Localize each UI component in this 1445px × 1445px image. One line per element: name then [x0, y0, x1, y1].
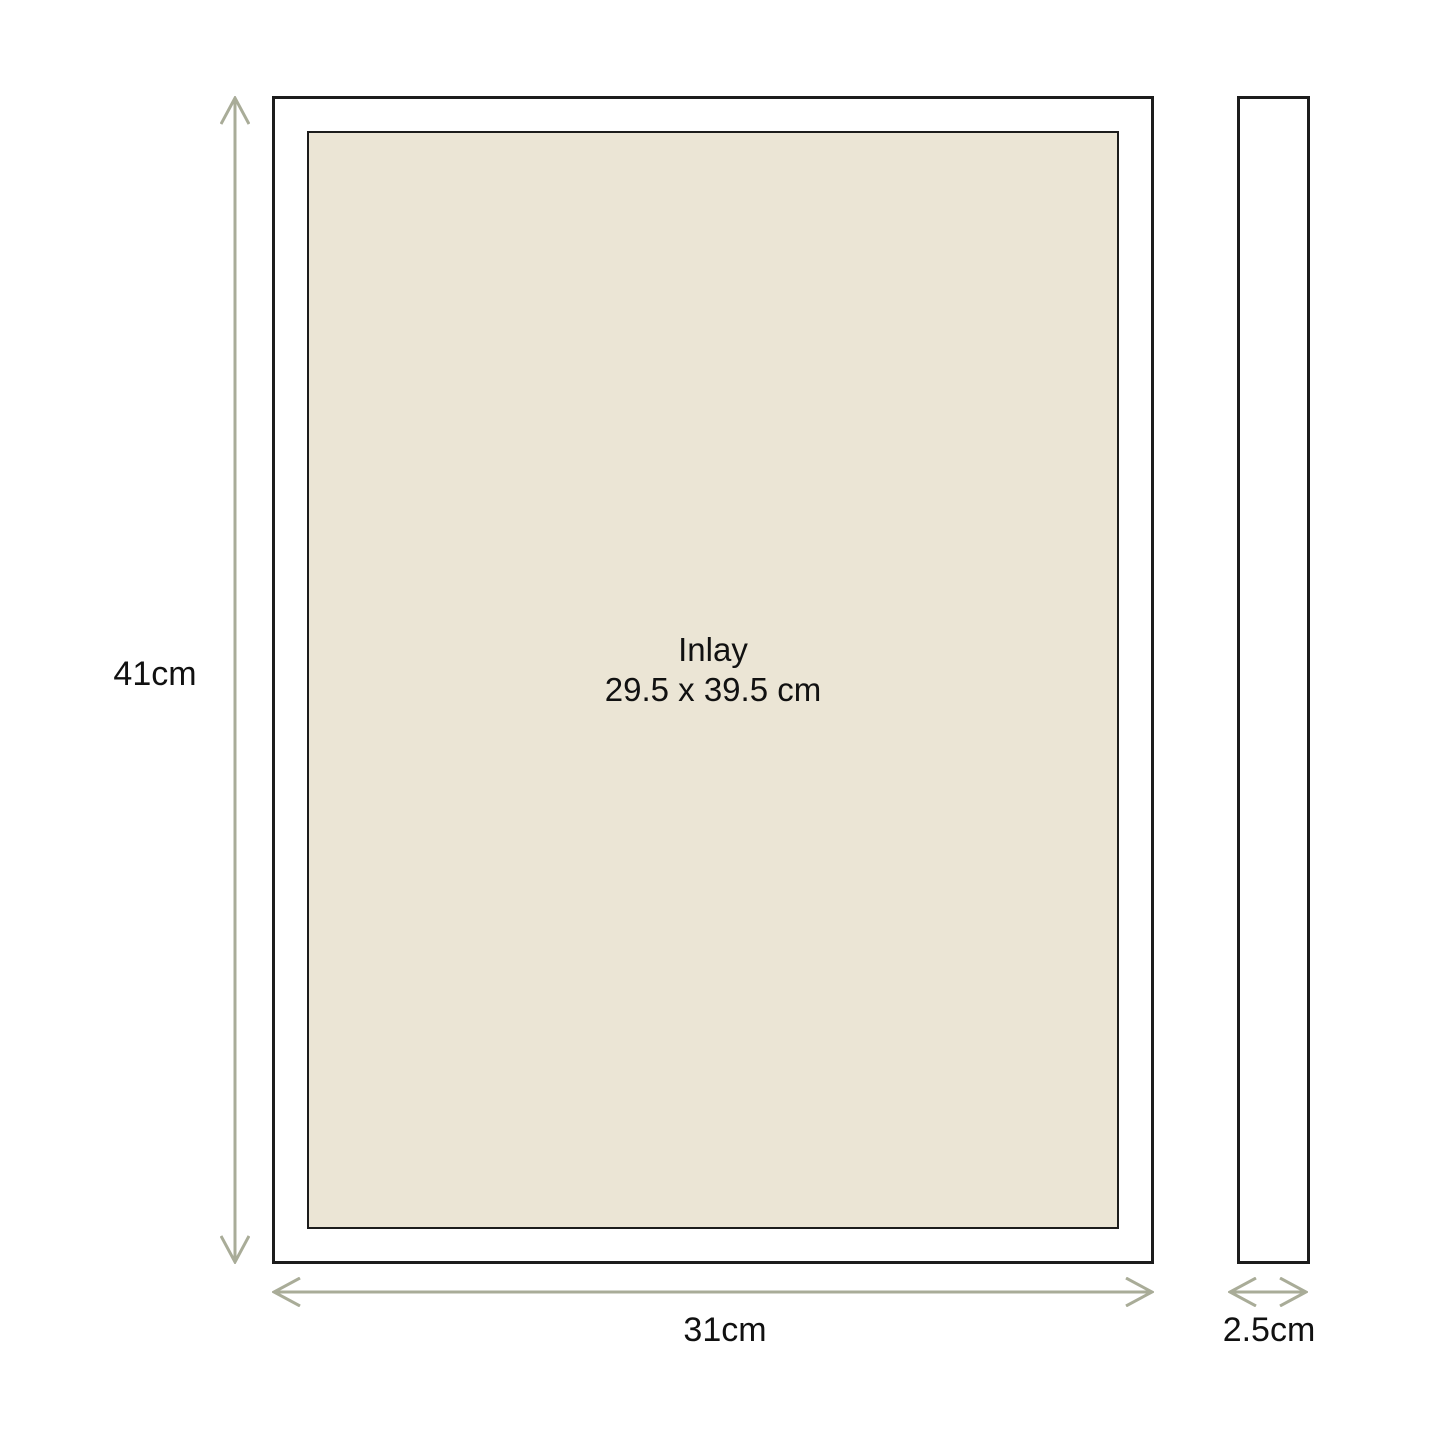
depth-dimension-arrow — [1228, 1277, 1308, 1307]
frame-side-view — [1237, 96, 1310, 1264]
width-dimension-label: 31cm — [635, 1312, 815, 1348]
depth-dimension-label: 2.5cm — [1179, 1312, 1359, 1348]
inlay-label: Inlay 29.5 x 39.5 cm — [605, 630, 821, 710]
double-arrow-horizontal-icon — [272, 1277, 1154, 1307]
inlay-name-label: Inlay — [605, 630, 821, 670]
double-arrow-horizontal-icon — [1228, 1277, 1308, 1307]
frame-front-view: Inlay 29.5 x 39.5 cm — [272, 96, 1154, 1264]
frame-dimensions-diagram: Inlay 29.5 x 39.5 cm 41cm 31cm 2.5cm — [0, 0, 1445, 1445]
inlay-size-label: 29.5 x 39.5 cm — [605, 670, 821, 710]
width-dimension-arrow — [272, 1277, 1154, 1307]
inlay-area: Inlay 29.5 x 39.5 cm — [307, 131, 1119, 1229]
height-dimension-label: 41cm — [65, 656, 245, 692]
